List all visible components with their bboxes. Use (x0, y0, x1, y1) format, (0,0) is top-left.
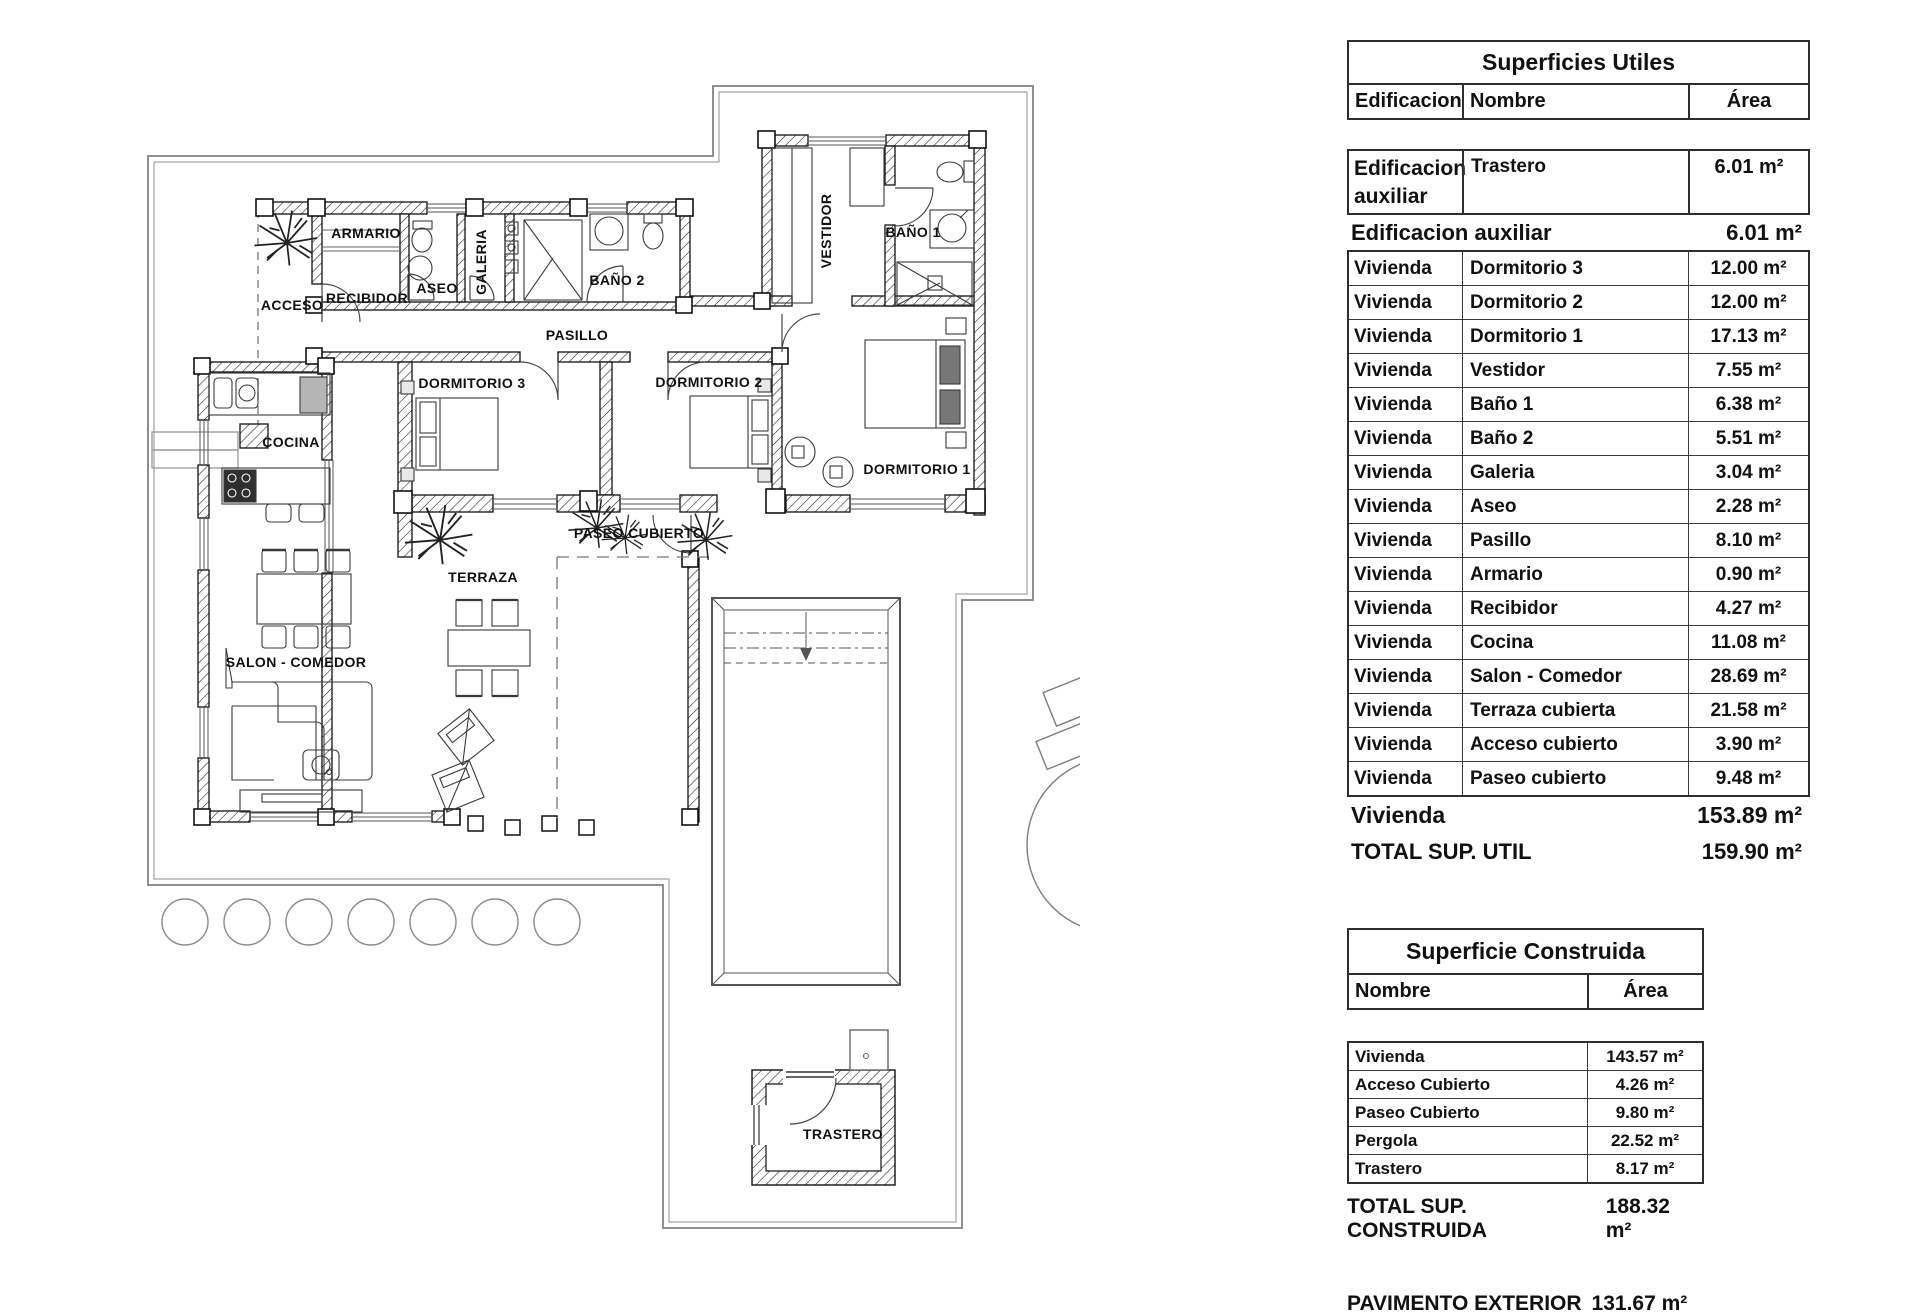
cell-area: 28.69 m² (1688, 660, 1808, 693)
cell-edificacion: Vivienda (1349, 694, 1462, 727)
cell-nombre: Dormitorio 3 (1462, 252, 1688, 285)
vivienda-subtotal: Vivienda 153.89 m² (1347, 797, 1810, 834)
label-armario: ARMARIO (331, 225, 401, 241)
label-bano2: BAÑO 2 (589, 271, 644, 288)
cell-nombre: Vivienda (1349, 1043, 1587, 1070)
cell-nombre: Pasillo (1462, 524, 1688, 557)
cell-nombre: Dormitorio 2 (1462, 286, 1688, 319)
garden-pergola (1027, 654, 1080, 967)
cell-nombre: Trastero (1462, 151, 1688, 213)
cell-area: 6.38 m² (1688, 388, 1808, 421)
cell-area: 12.00 m² (1688, 252, 1808, 285)
table2-header-row: Nombre Área (1349, 975, 1702, 1008)
pavimento-exterior: PAVIMENTO EXTERIOR 131.67 m² (1347, 1292, 1699, 1316)
cell-edificacion: Vivienda (1349, 252, 1462, 285)
label-dormitorio3: DORMITORIO 3 (418, 375, 525, 391)
cell-nombre: Dormitorio 1 (1462, 320, 1688, 353)
cell-nombre: Recibidor (1462, 592, 1688, 625)
col-header-area: Área (1688, 85, 1808, 118)
cell-nombre: Cocina (1462, 626, 1688, 659)
trastero-building (750, 1030, 895, 1185)
cell-nombre: Baño 2 (1462, 422, 1688, 455)
label-aseo: ASEO (416, 280, 457, 296)
label-dormitorio2: DORMITORIO 2 (655, 374, 762, 390)
table-row: Trastero8.17 m² (1349, 1155, 1702, 1182)
table-row: ViviendaAseo2.28 m² (1349, 490, 1808, 524)
cell-nombre: Armario (1462, 558, 1688, 591)
table-row: ViviendaArmario0.90 m² (1349, 558, 1808, 592)
table-row: ViviendaSalon - Comedor28.69 m² (1349, 660, 1808, 694)
cell-area: 21.58 m² (1688, 694, 1808, 727)
label-paseo: PASEO CUBIERTO (574, 525, 704, 541)
cell-edificacion: Vivienda (1349, 354, 1462, 387)
label-pasillo: PASILLO (546, 327, 608, 343)
superficie-construida-header: Superficie Construida Nombre Área (1347, 928, 1704, 1010)
pavimento-label: PAVIMENTO EXTERIOR (1347, 1292, 1582, 1316)
table-header-row: Edificacion Nombre Área (1349, 85, 1808, 118)
table-row: ViviendaBaño 25.51 m² (1349, 422, 1808, 456)
label-terraza: TERRAZA (448, 569, 518, 585)
cell-nombre: Salon - Comedor (1462, 660, 1688, 693)
cell-area: 4.26 m² (1587, 1071, 1702, 1098)
cell-area: 8.10 m² (1688, 524, 1808, 557)
cell-nombre: Terraza cubierta (1462, 694, 1688, 727)
table-row: ViviendaCocina11.08 m² (1349, 626, 1808, 660)
cell-edificacion: Vivienda (1349, 320, 1462, 353)
table-row: ViviendaGaleria3.04 m² (1349, 456, 1808, 490)
cell-area: 22.52 m² (1587, 1127, 1702, 1154)
cell-edificacion: Vivienda (1349, 728, 1462, 761)
cell-edificacion: Vivienda (1349, 558, 1462, 591)
cell-nombre: Aseo (1462, 490, 1688, 523)
label-trastero: TRASTERO (803, 1126, 883, 1142)
pool (712, 598, 900, 985)
cell-area: 6.01 m² (1688, 151, 1808, 213)
cell-nombre: Acceso cubierto (1462, 728, 1688, 761)
label-acceso: ACCESO (261, 297, 323, 313)
cell-area: 12.00 m² (1688, 286, 1808, 319)
aux-row: Edificacion auxiliar Trastero 6.01 m² (1347, 149, 1810, 215)
total-sup-construida: TOTAL SUP. CONSTRUIDA 188.32 m² (1347, 1195, 1699, 1243)
cell-edificacion: Edificacion auxiliar (1349, 151, 1462, 213)
cell-area: 7.55 m² (1688, 354, 1808, 387)
room-labels: ARMARIO ACCESO RECIBIDOR ASEO GALERIA BA… (226, 194, 971, 1142)
col-header-nombre2: Nombre (1349, 975, 1587, 1008)
page: { "plan": { "labels": { "armario": "ARMA… (0, 0, 1920, 1280)
cell-area: 0.90 m² (1688, 558, 1808, 591)
cell-area: 9.48 m² (1688, 762, 1808, 795)
table-row: ViviendaPasillo8.10 m² (1349, 524, 1808, 558)
cell-nombre: Baño 1 (1462, 388, 1688, 421)
cell-nombre: Paseo cubierto (1462, 762, 1688, 795)
table-row: ViviendaVestidor7.55 m² (1349, 354, 1808, 388)
pergola-posts (468, 816, 594, 835)
cell-area: 5.51 m² (1688, 422, 1808, 455)
table-row: ViviendaDormitorio 212.00 m² (1349, 286, 1808, 320)
table-row: Paseo Cubierto9.80 m² (1349, 1099, 1702, 1127)
cell-area: 8.17 m² (1587, 1155, 1702, 1182)
cell-edificacion: Vivienda (1349, 524, 1462, 557)
cell-area: 17.13 m² (1688, 320, 1808, 353)
cell-area: 2.28 m² (1688, 490, 1808, 523)
cell-area: 9.80 m² (1587, 1099, 1702, 1126)
vivienda-subtotal-label: Vivienda (1351, 802, 1445, 829)
total-construida-label: TOTAL SUP. CONSTRUIDA (1347, 1195, 1606, 1243)
cell-nombre: Galeria (1462, 456, 1688, 489)
col-header-nombre: Nombre (1462, 85, 1688, 118)
table-row: ViviendaDormitorio 312.00 m² (1349, 252, 1808, 286)
label-bano1: BAÑO 1 (885, 223, 940, 240)
cell-edificacion: Vivienda (1349, 388, 1462, 421)
cell-area: 11.08 m² (1688, 626, 1808, 659)
cell-edificacion: Vivienda (1349, 660, 1462, 693)
table-row: Acceso Cubierto4.26 m² (1349, 1071, 1702, 1099)
cell-nombre: Trastero (1349, 1155, 1587, 1182)
table-row: Vivienda143.57 m² (1349, 1043, 1702, 1071)
aux-subtotal: Edificacion auxiliar 6.01 m² (1347, 215, 1810, 250)
table-title: Superficies Utiles (1349, 42, 1808, 85)
table-row: ViviendaRecibidor4.27 m² (1349, 592, 1808, 626)
aux-subtotal-value: 6.01 m² (1726, 220, 1802, 246)
vivienda-rows: ViviendaDormitorio 312.00 m² ViviendaDor… (1347, 250, 1810, 797)
label-salon: SALON - COMEDOR (226, 654, 367, 670)
cell-edificacion: Vivienda (1349, 286, 1462, 319)
cell-nombre: Vestidor (1462, 354, 1688, 387)
cell-edificacion: Vivienda (1349, 490, 1462, 523)
cell-nombre: Paseo Cubierto (1349, 1099, 1587, 1126)
label-galeria: GALERIA (473, 229, 489, 295)
floor-plan: ARMARIO ACCESO RECIBIDOR ASEO GALERIA BA… (0, 0, 1080, 1280)
area-tables: Superficies Utiles Edificacion Nombre Ár… (1347, 40, 1810, 1316)
cell-nombre: Pergola (1349, 1127, 1587, 1154)
table-row: ViviendaTerraza cubierta21.58 m² (1349, 694, 1808, 728)
label-vestidor: VESTIDOR (818, 194, 834, 269)
cell-edificacion: Vivienda (1349, 762, 1462, 795)
table2-title: Superficie Construida (1349, 930, 1702, 975)
table-row: ViviendaBaño 16.38 m² (1349, 388, 1808, 422)
table-row: Pergola22.52 m² (1349, 1127, 1702, 1155)
col-header-edificacion: Edificacion (1349, 85, 1462, 118)
total-util-label: TOTAL SUP. UTIL (1351, 839, 1532, 865)
cell-nombre: Acceso Cubierto (1349, 1071, 1587, 1098)
label-dormitorio1: DORMITORIO 1 (863, 461, 970, 477)
table-row: ViviendaPaseo cubierto9.48 m² (1349, 762, 1808, 795)
pavimento-value: 131.67 m² (1592, 1292, 1688, 1316)
label-recibidor: RECIBIDOR (326, 290, 408, 306)
cell-edificacion: Vivienda (1349, 456, 1462, 489)
cell-area: 143.57 m² (1587, 1043, 1702, 1070)
cell-area: 4.27 m² (1688, 592, 1808, 625)
tree-row (162, 899, 580, 945)
label-cocina: COCINA (262, 434, 320, 450)
vivienda-subtotal-value: 153.89 m² (1697, 802, 1802, 829)
cell-area: 3.90 m² (1688, 728, 1808, 761)
table-row: ViviendaDormitorio 117.13 m² (1349, 320, 1808, 354)
cell-edificacion: Vivienda (1349, 592, 1462, 625)
aux-subtotal-label: Edificacion auxiliar (1351, 220, 1552, 246)
cell-edificacion: Vivienda (1349, 626, 1462, 659)
cell-edificacion: Vivienda (1349, 422, 1462, 455)
total-util-value: 159.90 m² (1702, 839, 1802, 865)
cell-area: 3.04 m² (1688, 456, 1808, 489)
total-construida-value: 188.32 m² (1606, 1195, 1699, 1243)
col-header-area2: Área (1587, 975, 1702, 1008)
total-sup-util: TOTAL SUP. UTIL 159.90 m² (1347, 834, 1810, 869)
construida-rows: Vivienda143.57 m² Acceso Cubierto4.26 m²… (1347, 1041, 1704, 1184)
superficies-utiles-header: Superficies Utiles Edificacion Nombre Ár… (1347, 40, 1810, 120)
table-row: ViviendaAcceso cubierto3.90 m² (1349, 728, 1808, 762)
